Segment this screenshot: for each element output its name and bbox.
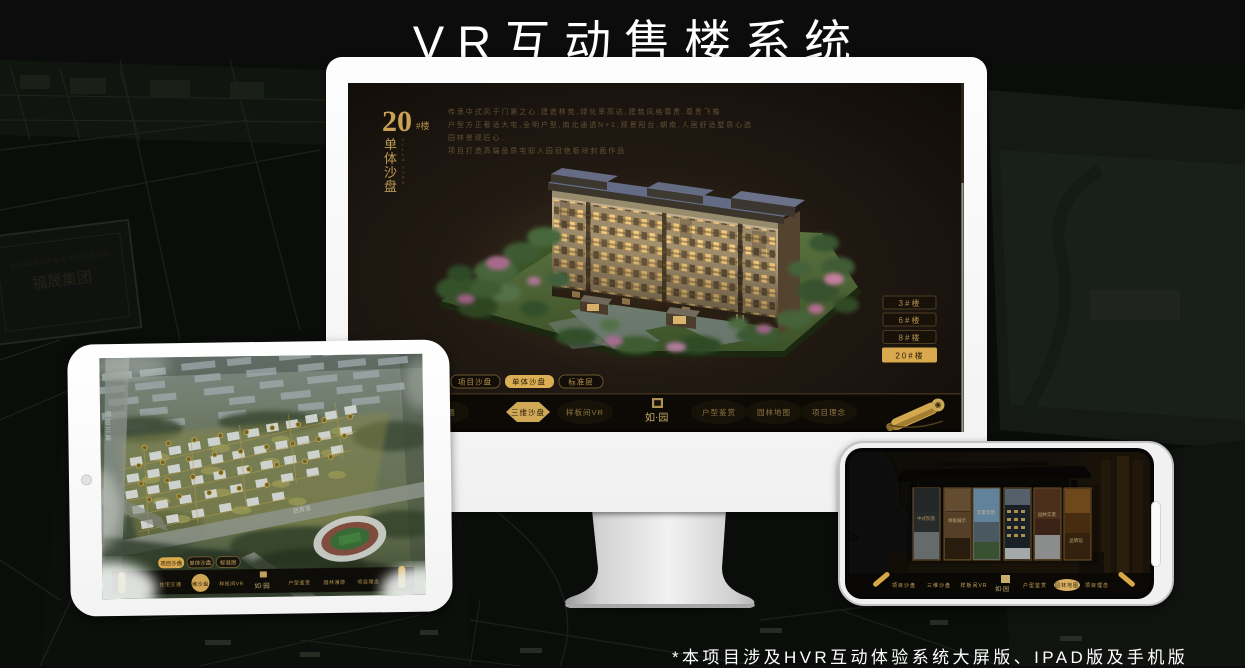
svg-text:区: 区 bbox=[105, 419, 111, 426]
svg-text:项目沙盘: 项目沙盘 bbox=[458, 377, 492, 387]
svg-text:项目理念: 项目理念 bbox=[357, 578, 379, 585]
svg-text:E: E bbox=[402, 180, 405, 185]
svg-text:住宅交通: 住宅交通 bbox=[159, 581, 181, 588]
svg-text:20: 20 bbox=[382, 105, 412, 138]
svg-text:三维沙盘: 三维沙盘 bbox=[511, 407, 545, 417]
svg-text:标准层: 标准层 bbox=[220, 558, 237, 566]
svg-text:项目理念: 项目理念 bbox=[812, 407, 846, 417]
svg-text:3#楼: 3#楼 bbox=[899, 298, 922, 308]
svg-text:户型鉴赏: 户型鉴赏 bbox=[1023, 582, 1047, 589]
svg-text:路: 路 bbox=[105, 434, 111, 442]
svg-text:#楼: #楼 bbox=[416, 120, 430, 131]
svg-text:园林地图: 园林地图 bbox=[757, 407, 791, 417]
svg-text:户型方正奢适大宅,全明户型,南北通透N+1,观景阳台,朝南,: 户型方正奢适大宅,全明户型,南北通透N+1,观景阳台,朝南,人居舒适墅质心选 bbox=[448, 120, 753, 129]
svg-text:A: A bbox=[402, 157, 405, 162]
svg-text:6#楼: 6#楼 bbox=[899, 315, 922, 325]
svg-text:户型鉴赏: 户型鉴赏 bbox=[288, 579, 310, 586]
svg-text:户型鉴赏: 户型鉴赏 bbox=[702, 407, 736, 417]
svg-text:如·园: 如·园 bbox=[645, 411, 668, 424]
svg-text:园: 园 bbox=[105, 411, 111, 418]
svg-text:项目理念: 项目理念 bbox=[1085, 582, 1109, 589]
svg-text:样板间VR: 样板间VR bbox=[961, 582, 988, 589]
svg-text:传承中式风于门第之心,建造林苑,绿化率高达,建筑风格尊贵,尊: 传承中式风于门第之心,建造林苑,绿化率高达,建筑风格尊贵,尊贵飞檐 bbox=[448, 107, 721, 116]
svg-text:标准层: 标准层 bbox=[568, 377, 594, 387]
svg-text:20#楼: 20#楼 bbox=[895, 351, 924, 361]
svg-text:单体沙盘: 单体沙盘 bbox=[512, 377, 546, 387]
svg-text:维沙盘: 维沙盘 bbox=[192, 581, 209, 588]
svg-text:8#楼: 8#楼 bbox=[899, 333, 922, 343]
svg-text:三维沙盘: 三维沙盘 bbox=[927, 582, 951, 589]
svg-text:三: 三 bbox=[105, 427, 111, 434]
svg-text:项目打造高端品质宅邸入园冠绝板块封面作品: 项目打造高端品质宅邸入园冠绝板块封面作品 bbox=[448, 146, 626, 155]
svg-text:园林漫游: 园林漫游 bbox=[323, 579, 345, 586]
svg-text:项目沙盘: 项目沙盘 bbox=[892, 582, 916, 589]
svg-text:样板间VR: 样板间VR bbox=[566, 407, 604, 417]
svg-text:园林地图: 园林地图 bbox=[1055, 582, 1079, 589]
svg-text:样板间VR: 样板间VR bbox=[219, 580, 244, 587]
svg-text:园林景观匠心.: 园林景观匠心. bbox=[448, 133, 505, 142]
svg-text:如·园: 如·园 bbox=[995, 585, 1009, 593]
svg-text:单体沙盘: 单体沙盘 bbox=[384, 137, 397, 194]
svg-text:如·园: 如·园 bbox=[254, 581, 269, 590]
